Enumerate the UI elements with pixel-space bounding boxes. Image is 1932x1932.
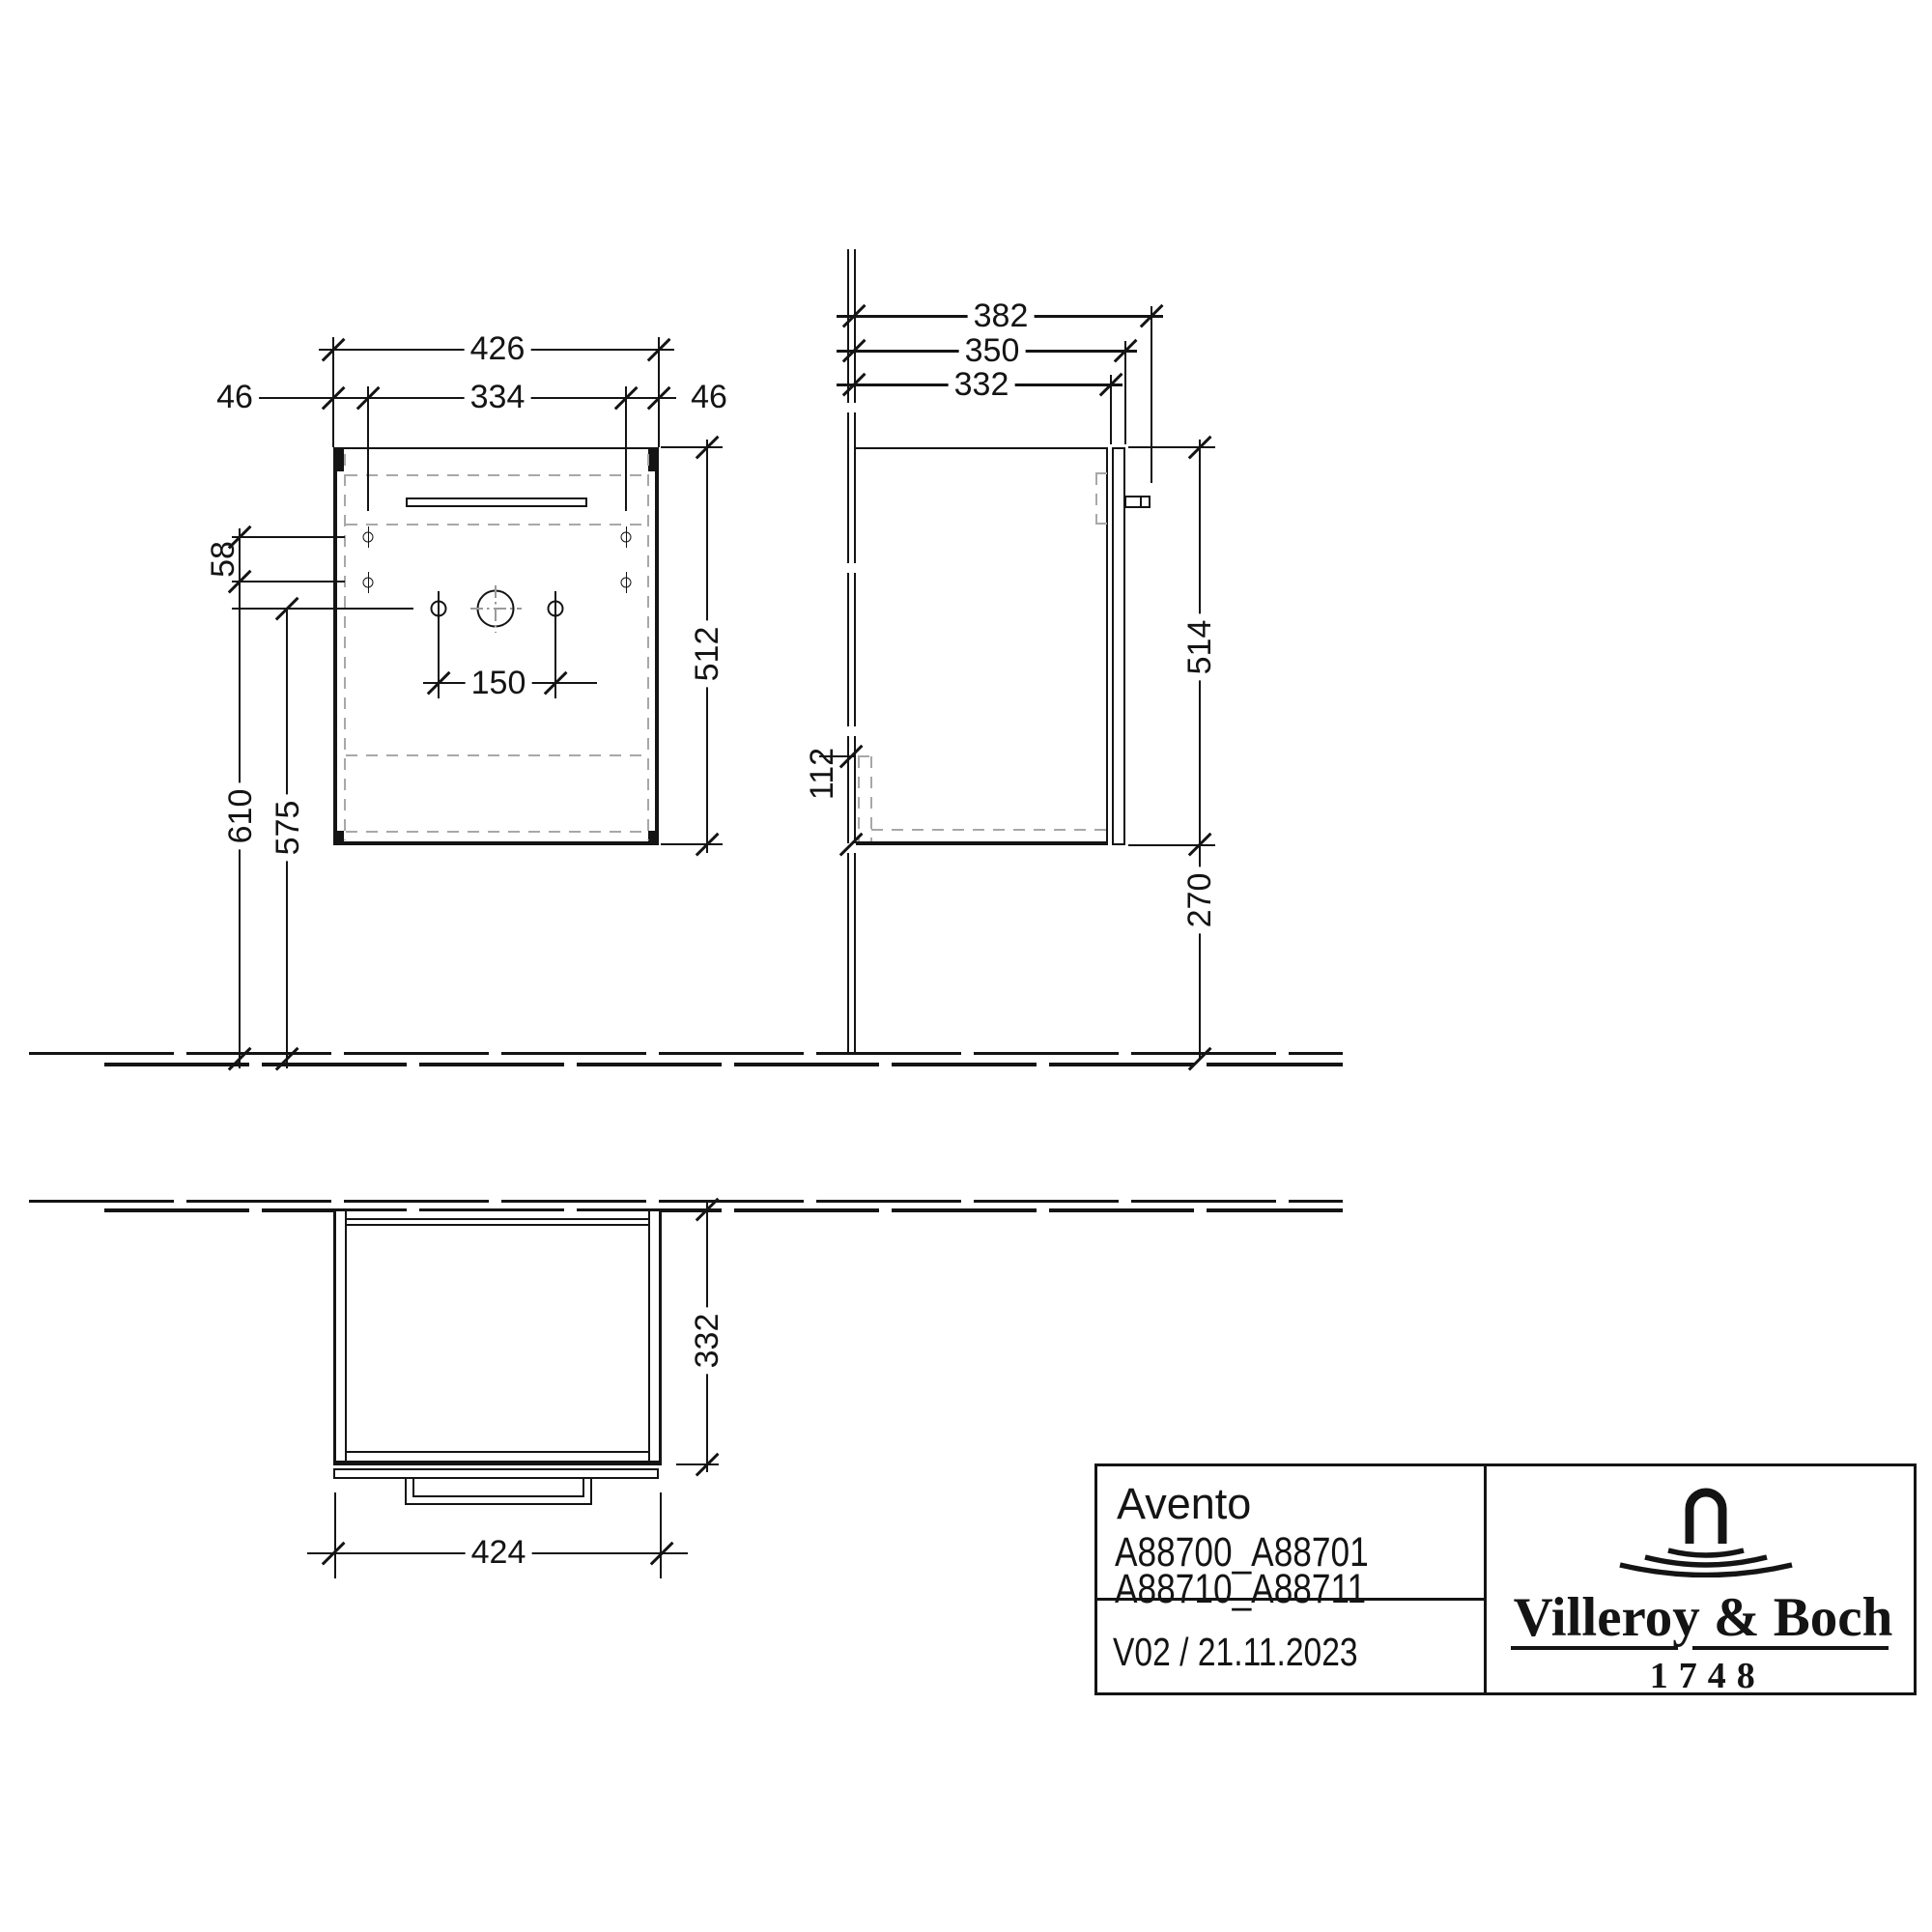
extension-line [625,386,627,511]
brand-founded-year: 1748 [1650,1658,1766,1694]
dim-text-faucet-span: 150 [466,665,532,701]
centerline [368,526,370,548]
brand-name: Villeroy & Boch [1514,1590,1893,1645]
extension-line [1124,341,1126,444]
panel-cap [333,447,344,471]
side-door [1112,447,1125,845]
extension-line [661,843,723,845]
extension-line [334,1492,336,1578]
dim-text-floor-to-faucet: 575 [270,795,306,862]
side-carcass [856,447,1108,845]
centerline [368,572,370,593]
handle-recess-line [590,1479,592,1505]
dimension-line [222,397,676,400]
siphon-dashed-outline [871,829,1106,831]
extension-line [1151,306,1152,483]
extension-line [232,608,413,610]
drawing-canvas: 150 426 46 334 46 58 610 575 512 [0,0,1932,1932]
extension-line [332,337,334,447]
interior-dashed-line [346,524,648,526]
version-date: V02 / 21.11.2023 [1113,1633,1358,1672]
dim-text-offset-left: 46 [211,379,259,415]
extension-line [658,337,660,447]
dim-text-plan-width: 424 [466,1534,532,1571]
extension-line [676,1463,719,1465]
wall-line [847,573,856,726]
dim-text-height: 512 [689,621,725,688]
wall-line [847,412,856,563]
product-name: Avento [1117,1482,1251,1525]
dim-text-hole-row-gap: 58 [205,535,241,583]
plan-carcass [333,1211,662,1465]
dim-text-hinge-span: 334 [465,379,531,415]
wall-line-plan [29,1200,1343,1212]
door-dashed-edge [346,831,648,833]
dim-text-siphon-height: 112 [804,742,840,806]
hinge-dashed-outline [1095,473,1097,525]
centerline [626,526,628,548]
panel-cap [648,831,659,845]
extension-line [660,1492,662,1578]
brand-underline [1511,1646,1678,1650]
plan-door [333,1468,659,1479]
extension-line [232,581,345,582]
hinge-dashed-outline [1095,523,1109,525]
wall-line [847,249,856,403]
centerline [626,572,628,593]
brand-underline [1692,1646,1889,1650]
faucet-water-icon [1614,1486,1798,1577]
handle-recess-line [412,1495,583,1497]
panel-cap [648,447,659,471]
dim-text-carcass-depth: 332 [949,366,1015,403]
dim-text-total-depth: 382 [968,298,1035,334]
interior-dashed-line [346,754,648,756]
dim-text-door-depth: 350 [959,332,1026,369]
hinge-dashed-outline [1095,472,1109,474]
brand-logo: Villeroy & Boch 1748 [1487,1466,1919,1692]
dim-text-floor-to-hinge: 610 [222,783,259,850]
handle-recess-line [405,1503,591,1505]
siphon-dashed-outline [858,756,860,841]
extension-line [1128,844,1215,846]
dim-text-offset-right: 46 [685,379,733,415]
side-handle [1124,496,1151,508]
handle-detail-line [1140,497,1142,506]
handle-slot [406,497,587,507]
side-panel-inner-line [345,1211,347,1461]
extension-line [1110,375,1112,444]
panel-cap [333,831,344,845]
title-block: Avento A88700_A88701 A88710_A88711 V02 /… [1094,1463,1917,1695]
centerline [495,585,497,633]
wall-line [847,853,856,1052]
side-panel-inner-line [648,1211,650,1461]
handle-recess-line [405,1479,407,1505]
front-inner-line [346,1451,649,1453]
extension-line [661,446,723,448]
door-dashed-edge [647,454,649,840]
dim-text-plan-depth: 332 [689,1308,725,1375]
dim-text-side-height: 514 [1181,614,1218,681]
dim-text-floor-clearance: 270 [1181,867,1218,934]
siphon-dashed-outline [858,755,872,757]
door-dashed-edge [346,474,648,476]
back-panel-line [346,1224,649,1226]
dim-text-total-width: 426 [465,330,531,367]
floor-line-upper [29,1052,1343,1066]
back-panel-line [346,1218,649,1220]
door-dashed-edge [344,454,346,840]
extension-line [367,386,369,511]
dimension-line [1199,440,1202,1060]
article-code: A88710_A88711 [1115,1569,1366,1610]
extension-line [232,536,345,538]
